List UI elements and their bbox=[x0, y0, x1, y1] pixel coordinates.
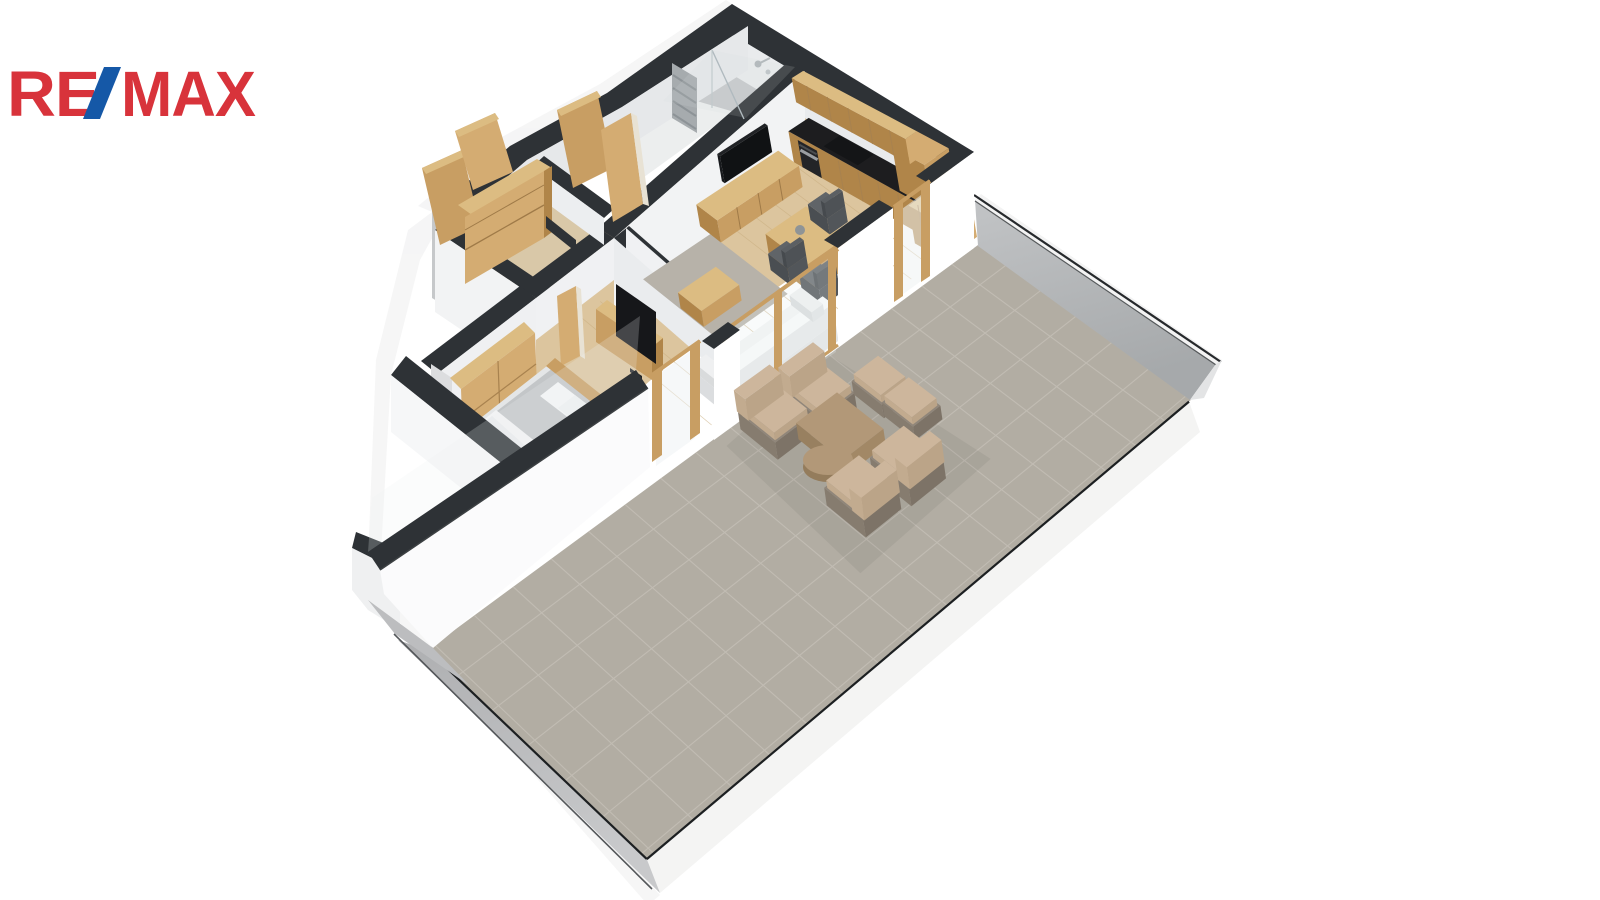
svg-text:RE: RE bbox=[7, 58, 99, 130]
svg-text:MAX: MAX bbox=[121, 58, 256, 130]
